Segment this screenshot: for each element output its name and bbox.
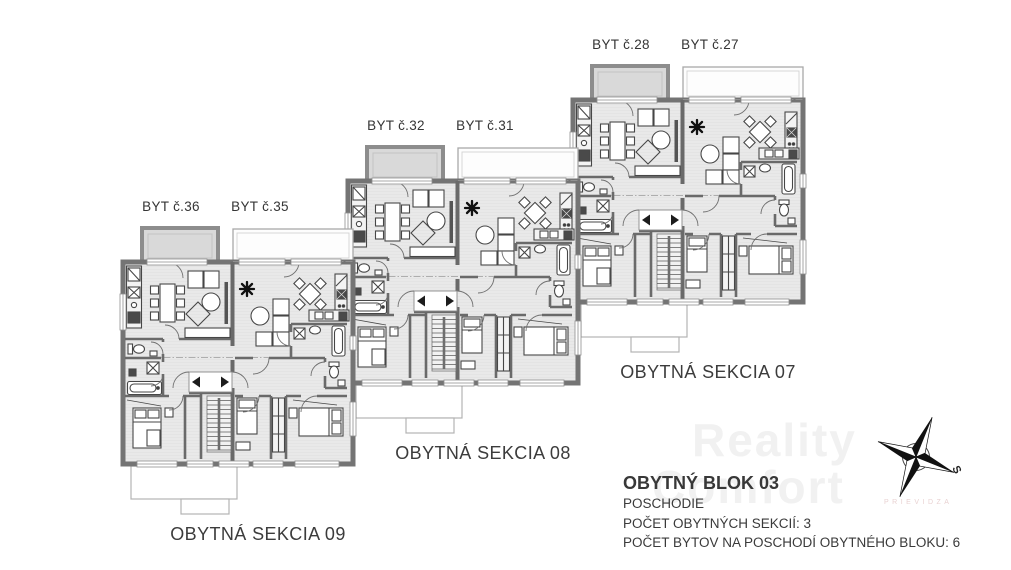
- apartment-label: BYT č.27: [681, 37, 739, 52]
- floor-label: POSCHODIE: [623, 496, 704, 511]
- section-label: OBYTNÁ SEKCIA 09: [170, 524, 345, 544]
- block-title: OBYTNÝ BLOK 03: [623, 472, 779, 493]
- apartment-label: BYT č.32: [367, 118, 425, 133]
- compass-icon: S: [862, 402, 970, 512]
- building-section-07: BYT č.28 BYT č.27 OBYTNÁ SEKCIA 07: [570, 37, 806, 382]
- building-section-08: BYT č.32 BYT č.31 OBYTNÁ SEKCIA 08: [345, 118, 581, 463]
- apartment-label: BYT č.28: [592, 37, 650, 52]
- section-label: OBYTNÁ SEKCIA 07: [620, 362, 795, 382]
- sections-count-label: POČET OBYTNÝCH SEKCIÍ: 3: [623, 516, 811, 531]
- apartment-label: BYT č.31: [456, 118, 514, 133]
- apartment-label: BYT č.36: [142, 199, 200, 214]
- floor-plan-drawing: Reality Comfort PRIEVIDZA BYT č.28 BYT č…: [0, 0, 1011, 570]
- compass-south-label: S: [949, 464, 963, 476]
- watermark-line3: PRIEVIDZA: [884, 499, 952, 506]
- watermark-line1: Reality: [692, 414, 857, 466]
- building-section-09: BYT č.36 BYT č.35 OBYTNÁ SEKCIA 09: [120, 199, 356, 544]
- section-label: OBYTNÁ SEKCIA 08: [395, 443, 570, 463]
- apartments-count-label: POČET BYTOV NA POSCHODÍ OBYTNÉHO BLOKU: …: [623, 535, 960, 550]
- apartment-label: BYT č.35: [231, 199, 289, 214]
- floor-plan-canvas: Reality Comfort PRIEVIDZA BYT č.28 BYT č…: [0, 0, 1011, 570]
